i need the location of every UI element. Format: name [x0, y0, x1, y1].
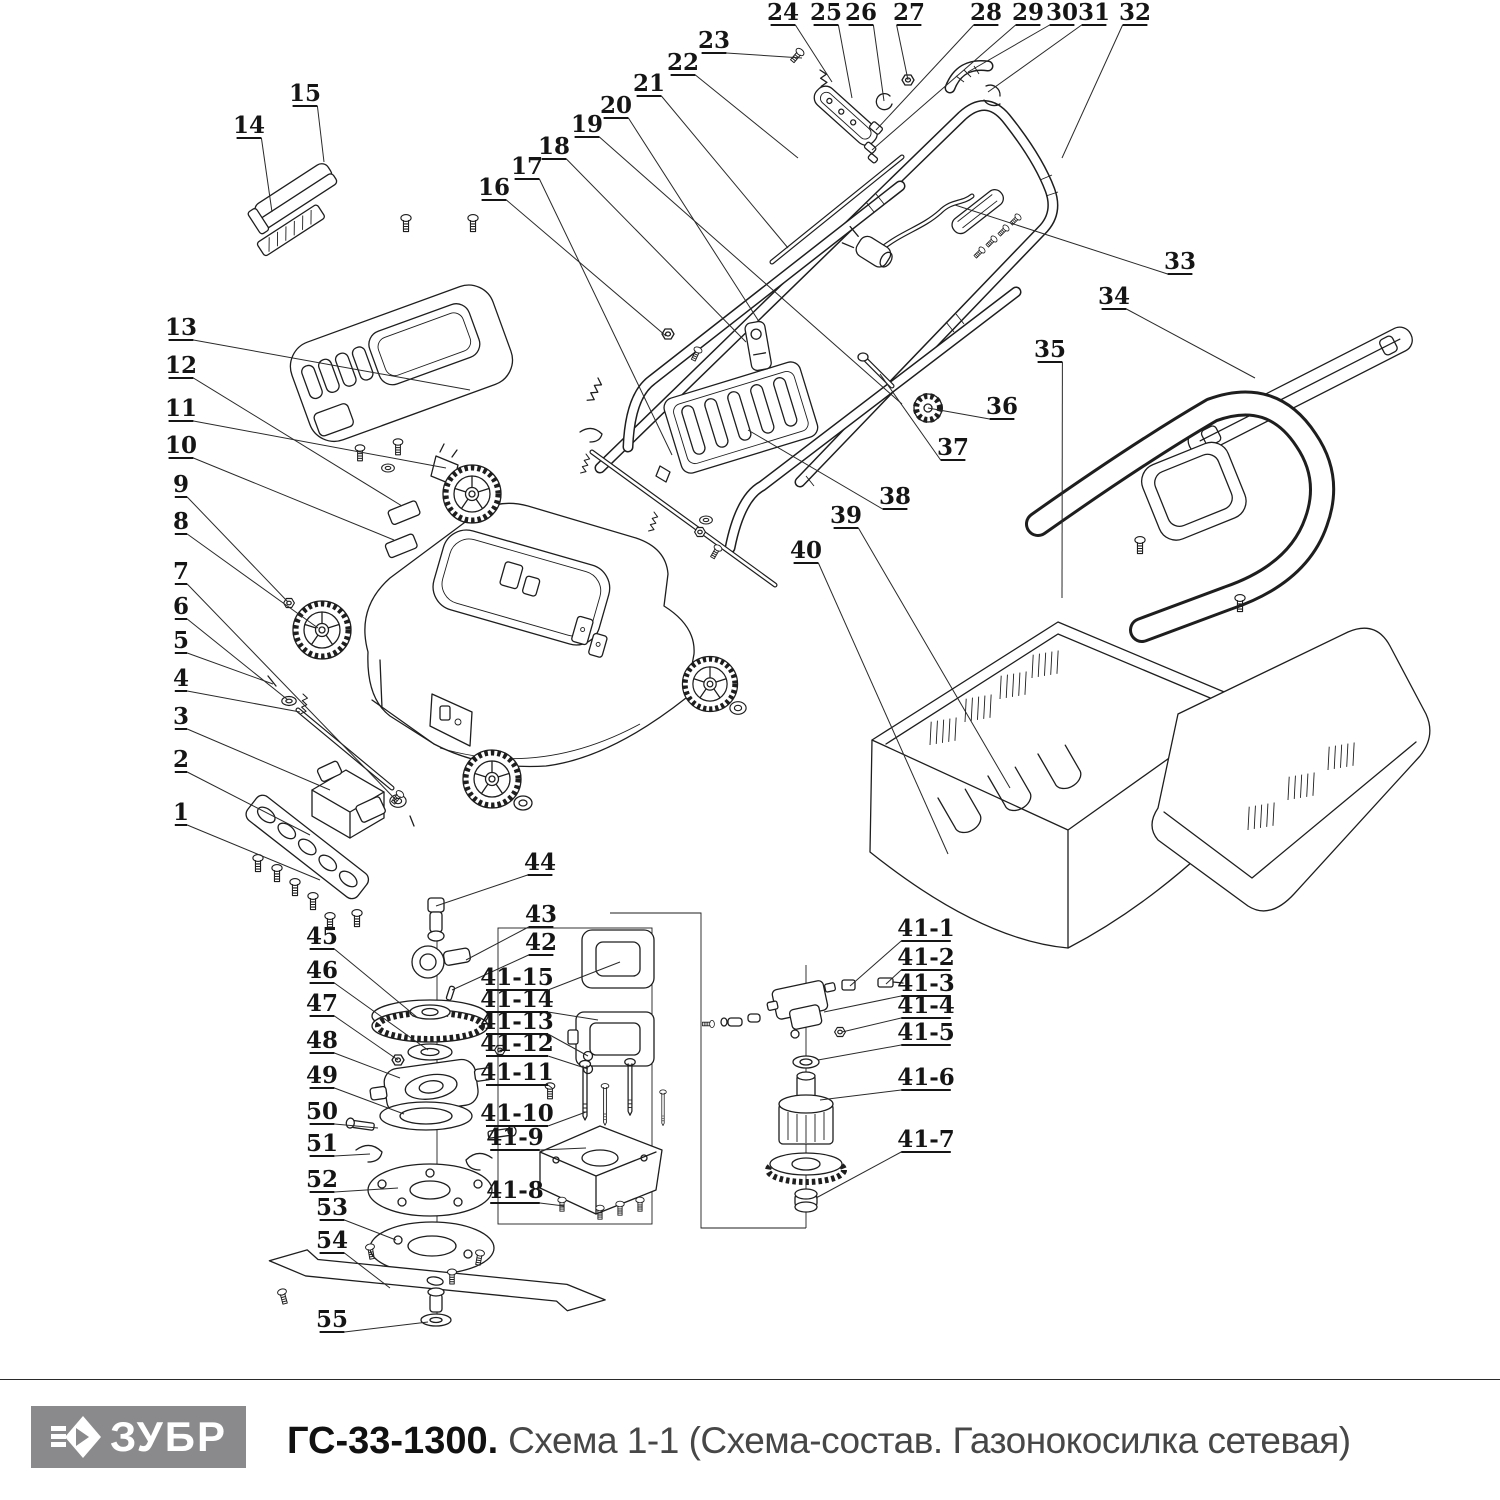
svg-text:6: 6 — [173, 593, 189, 620]
part-grassbox-right — [1152, 628, 1430, 911]
svg-text:19: 19 — [571, 111, 603, 138]
svg-text:8: 8 — [173, 508, 189, 535]
callout-22: 22 — [667, 49, 798, 158]
part-motor-cover — [283, 278, 520, 449]
svg-text:54: 54 — [316, 1227, 348, 1254]
svg-text:42: 42 — [525, 929, 557, 956]
exploded-diagram-canvas: 1234567891011121314151617181920212223242… — [0, 0, 1500, 1500]
part-switch-cluster — [789, 47, 1022, 260]
svg-text:1: 1 — [173, 799, 189, 826]
callout-17: 17 — [511, 153, 672, 455]
svg-text:41-7: 41-7 — [897, 1126, 955, 1153]
callout-41-11: 41-11 — [480, 1059, 554, 1088]
part-lower-handle — [628, 186, 1016, 548]
footer-divider — [0, 1379, 1500, 1380]
callout-4: 4 — [173, 665, 300, 712]
callout-6: 6 — [173, 593, 288, 700]
svg-text:10: 10 — [165, 432, 197, 459]
part-rear-flap — [1038, 403, 1322, 630]
callout-44: 44 — [436, 849, 556, 906]
svg-text:51: 51 — [306, 1130, 338, 1157]
callout-8: 8 — [173, 508, 318, 628]
svg-text:32: 32 — [1119, 0, 1151, 26]
svg-text:41-4: 41-4 — [897, 992, 955, 1019]
svg-text:26: 26 — [845, 0, 877, 26]
part-top-strip — [246, 161, 339, 257]
callout-15: 15 — [289, 80, 324, 162]
svg-text:41-12: 41-12 — [480, 1030, 554, 1057]
callout-14: 14 — [233, 112, 272, 212]
svg-text:2: 2 — [173, 746, 189, 773]
callout-16: 16 — [478, 174, 666, 336]
svg-text:30: 30 — [1046, 0, 1078, 26]
svg-text:31: 31 — [1078, 0, 1110, 26]
svg-text:52: 52 — [306, 1166, 338, 1193]
svg-text:55: 55 — [316, 1306, 348, 1333]
svg-text:5: 5 — [173, 627, 189, 654]
callout-23: 23 — [698, 27, 802, 58]
callout-41-10: 41-10 — [480, 1100, 586, 1127]
svg-text:28: 28 — [970, 0, 1002, 26]
svg-text:24: 24 — [767, 0, 799, 26]
svg-text:40: 40 — [790, 537, 822, 564]
callout-33: 33 — [955, 205, 1196, 275]
brand-name: ЗУБР — [110, 1413, 227, 1461]
svg-text:44: 44 — [524, 849, 556, 876]
callout-34: 34 — [1098, 283, 1255, 378]
svg-text:35: 35 — [1034, 336, 1066, 363]
svg-text:53: 53 — [316, 1194, 348, 1221]
svg-text:48: 48 — [306, 1027, 338, 1054]
callout-51: 51 — [306, 1130, 370, 1157]
svg-text:41-5: 41-5 — [897, 1019, 955, 1046]
svg-text:41-11: 41-11 — [480, 1059, 554, 1086]
callout-20: 20 — [600, 92, 758, 320]
svg-text:15: 15 — [289, 80, 321, 107]
svg-text:12: 12 — [165, 352, 197, 379]
svg-text:4: 4 — [173, 665, 189, 692]
svg-text:29: 29 — [1012, 0, 1044, 26]
callout-21: 21 — [633, 70, 788, 248]
svg-text:25: 25 — [810, 0, 842, 26]
callout-18: 18 — [538, 133, 746, 342]
svg-text:41-2: 41-2 — [897, 944, 955, 971]
svg-text:34: 34 — [1098, 283, 1130, 310]
callout-35: 35 — [1034, 336, 1066, 598]
svg-text:47: 47 — [306, 990, 338, 1017]
svg-text:9: 9 — [173, 471, 189, 498]
svg-text:16: 16 — [478, 174, 510, 201]
svg-text:33: 33 — [1164, 248, 1196, 275]
svg-text:22: 22 — [667, 49, 699, 76]
exploded-diagram — [243, 47, 1430, 1326]
svg-text:18: 18 — [538, 133, 570, 160]
svg-text:39: 39 — [830, 502, 862, 529]
callout-55: 55 — [316, 1306, 428, 1333]
callout-41-6: 41-6 — [820, 1064, 955, 1100]
svg-text:14: 14 — [233, 112, 265, 139]
svg-text:46: 46 — [306, 957, 338, 984]
svg-text:3: 3 — [173, 703, 189, 730]
svg-text:13: 13 — [165, 314, 197, 341]
callout-27: 27 — [893, 0, 925, 80]
brand-logo: ЗУБР — [31, 1406, 246, 1468]
svg-text:49: 49 — [306, 1062, 338, 1089]
zubr-arrow-icon — [50, 1414, 102, 1460]
model-number: ГС-33-1300. — [287, 1420, 498, 1462]
svg-text:38: 38 — [879, 483, 911, 510]
svg-text:41-6: 41-6 — [897, 1064, 955, 1091]
part-power-cord — [840, 196, 972, 272]
callout-41-5: 41-5 — [818, 1019, 955, 1060]
part-latch — [744, 321, 772, 372]
diagram-caption: ГС-33-1300.Схема 1-1 (Схема-состав. Газо… — [287, 1420, 1351, 1463]
svg-text:45: 45 — [306, 923, 338, 950]
svg-text:41-10: 41-10 — [480, 1100, 554, 1127]
svg-text:23: 23 — [698, 27, 730, 54]
svg-text:36: 36 — [986, 393, 1018, 420]
svg-text:21: 21 — [633, 70, 665, 97]
page: 1234567891011121314151617181920212223242… — [0, 0, 1500, 1500]
svg-text:41-8: 41-8 — [486, 1177, 544, 1204]
svg-text:27: 27 — [893, 0, 925, 26]
callout-19: 19 — [571, 111, 902, 404]
svg-text:41-9: 41-9 — [486, 1124, 544, 1151]
svg-text:37: 37 — [937, 434, 969, 461]
svg-text:43: 43 — [525, 901, 557, 928]
schema-subtitle: Схема 1-1 (Схема-состав. Газонокосилка с… — [508, 1420, 1350, 1461]
svg-text:50: 50 — [306, 1098, 338, 1125]
svg-text:41-1: 41-1 — [897, 915, 955, 942]
svg-text:7: 7 — [173, 558, 189, 585]
svg-text:20: 20 — [600, 92, 632, 119]
callout-26: 26 — [845, 0, 884, 101]
svg-text:11: 11 — [165, 395, 197, 422]
